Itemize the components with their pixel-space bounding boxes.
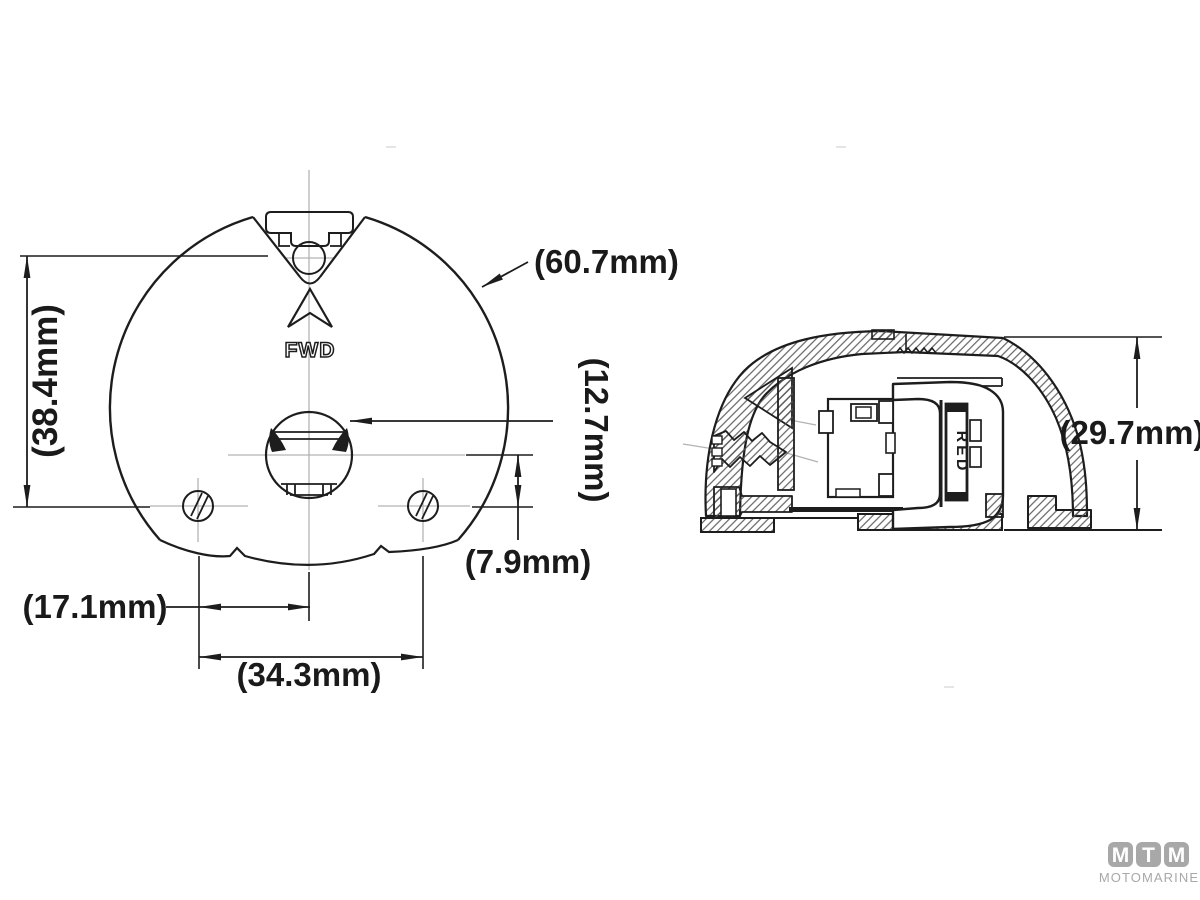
logo-letter-t: T [1142,844,1155,867]
logo-subtext: MOTOMARINE [1099,870,1199,885]
brand-logo: M T M MOTOMARINE [1099,842,1199,885]
notch-left-edge [253,217,300,277]
leader-line-607 [482,262,528,287]
bracket-foot-block [986,494,1003,517]
contact-bottom [970,447,981,467]
housing-shell-section [706,331,1087,516]
screw-slot-1 [712,436,722,444]
red-strip-cap-top [946,404,967,412]
module-connector-inner [856,407,871,418]
red-strip-cap-bottom [946,492,967,500]
logo-letter-m1: M [1112,844,1130,867]
dimensions-top-view: (38.4mm) (60.7mm) (12.7mm) (7.9mm) (17.1… [13,243,679,693]
dim-label-343: (34.3mm) [237,656,382,693]
led-module [819,399,895,497]
screw-slot-2 [712,448,722,456]
body-arc-right [365,217,508,540]
module-tab-bottom [879,474,893,496]
dim-label-607: (60.7mm) [534,243,679,280]
internal-rib-vertical [778,378,794,490]
base-shadow-bar [789,507,903,512]
slot-bracket-left [279,234,290,246]
slot-bracket-right [330,234,341,246]
dim-label-384: (38.4mm) [26,304,65,458]
logo-letter-m2: M [1168,844,1186,867]
red-label: RED [953,431,970,474]
fwd-arrow-icon [288,289,332,327]
notch-right-edge [320,217,365,277]
contact-top [970,420,981,441]
technical-drawing: FWD (38.4mm) (60.7mm) (1 [0,0,1200,900]
module-tab-top [879,401,893,423]
fwd-label: FWD [285,339,336,362]
body-arc-left [110,217,253,540]
notch-apex [300,277,320,284]
dim-label-171: (17.1mm) [23,588,168,625]
module-foot [836,489,860,497]
red-lens-strip: RED [946,404,970,500]
base-plate-left [701,518,774,532]
dim-label-127: (12.7mm) [578,358,615,503]
screw-head-slots [712,436,722,466]
module-clip-right [886,433,895,453]
screw-slot-3 [712,459,722,466]
dim-label-79: (7.9mm) [465,543,592,580]
top-view: FWD [110,170,508,570]
module-clip-left [819,411,833,433]
dim-label-297: (29.7mm) [1060,414,1200,451]
technical-drawing-page: FWD (38.4mm) (60.7mm) (1 [0,0,1200,900]
lower-slot [721,489,736,516]
top-tab [872,330,894,339]
